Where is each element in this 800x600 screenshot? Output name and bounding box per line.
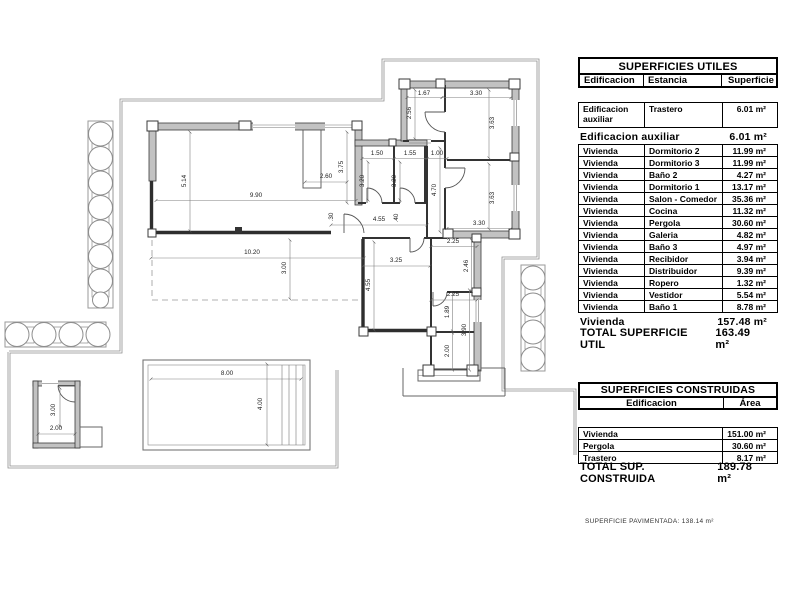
superficies-utiles-table: SUPERFICIES UTILES Edificacion Estancia … [578,57,778,348]
table-cell: Baño 1 [645,301,723,312]
dimension-label: 3.30 [473,220,486,227]
dimension-label: .30 [328,212,335,221]
table-cell: 13.17 m² [723,181,777,192]
dimension-label: 3.25 [390,257,403,264]
table-cell: 3.94 m² [723,253,777,264]
table-title: SUPERFICIES CONSTRUIDAS [578,382,778,398]
table-row: ViviendaCocina11.32 m² [578,204,778,217]
table-cell: 9.39 m² [723,265,777,276]
table-cell: Vivienda [579,253,645,264]
total-label: TOTAL SUPERFICIE UTIL [580,327,715,351]
table-header: Edificacion Estancia Superficie [578,73,778,88]
table-cell: Vivienda [579,217,645,228]
column-header: Estancia [644,75,722,86]
table-cell: 30.60 m² [723,440,777,451]
table-cell: Vestidor [645,289,723,300]
table-row: ViviendaDormitorio 113.17 m² [578,180,778,193]
dimension-label: 1.89 [444,305,451,318]
table-cell: 11.99 m² [723,145,777,156]
table-cell: 8.78 m² [723,301,777,312]
cell-estancia: Trastero [645,103,723,127]
column-header: Superficie [722,75,776,86]
table-row: ViviendaPergola30.60 m² [578,216,778,229]
floor-plan-document: 1.673.302.563.631.501.551.003.203.204.70… [0,0,800,600]
dimension-label: 1.00 [431,150,444,157]
table-cell: Pergola [645,217,723,228]
dimension-label: 5.14 [181,174,188,187]
dimension-label: 4.70 [431,183,438,196]
main-house-walls [147,79,520,396]
table-cell: Recibidor [645,253,723,264]
table-cell: Ropero [645,277,723,288]
table-cell: Vivienda [579,145,645,156]
dimension-label: 2.00 [50,425,63,432]
tree-row-left [88,121,113,308]
dimension-label: 3.75 [338,160,345,173]
construidas-rows: Vivienda151.00 m²Pergola30.60 m²Trastero… [578,427,778,464]
dimension-label: 2.25 [447,238,460,245]
dimension-label: 2.25 [447,291,460,298]
table-row: ViviendaBaño 34.97 m² [578,240,778,253]
table-row: ViviendaBaño 18.78 m² [578,300,778,313]
table-row: Vivienda151.00 m² [578,427,778,440]
table-row: ViviendaDormitorio 311.99 m² [578,156,778,169]
table-row: ViviendaBaño 24.27 m² [578,168,778,181]
table-cell: Baño 2 [645,169,723,180]
dimension-label: .40 [393,213,400,222]
dimension-label: 3.00 [281,261,288,274]
subtotal-row: Edificacion auxiliar 6.01 m² [578,128,778,145]
total-label: TOTAL SUP. CONSTRUIDA [580,461,717,485]
total-value: 163.49 m² [715,327,767,351]
tree-row-bottom [5,322,110,347]
table-cell: Vivienda [579,169,645,180]
dimension-label: 8.00 [221,370,234,377]
table-cell: 1.32 m² [723,277,777,288]
superficies-construidas-table: SUPERFICIES CONSTRUIDAS Edificacion Área… [578,382,778,482]
table-cell: Dormitorio 1 [645,181,723,192]
total-row: TOTAL SUPERFICIE UTIL 163.49 m² [578,330,778,348]
table-row: ViviendaSalon - Comedor35.36 m² [578,192,778,205]
table-cell: Vivienda [579,181,645,192]
storage-building [33,381,102,449]
dimension-label: 3.90 [461,323,468,336]
table-row: ViviendaVestidor5.54 m² [578,288,778,301]
table-cell: 4.27 m² [723,169,777,180]
dimension-label: 2.00 [444,344,451,357]
table-cell: Vivienda [579,428,723,439]
table-cell: 30.60 m² [723,217,777,228]
total-row: TOTAL SUP. CONSTRUIDA 189.78 m² [578,464,778,482]
table-cell: Cocina [645,205,723,216]
dimension-label: 3.00 [50,403,57,416]
table-cell: Dormitorio 2 [645,145,723,156]
column-header: Área [724,398,776,408]
dimension-label: 2.60 [320,173,333,180]
table-cell: Vivienda [579,289,645,300]
table-cell: Vivienda [579,241,645,252]
dimension-label: 4.55 [365,278,372,291]
total-value: 189.78 m² [717,461,767,485]
table-row: ViviendaGaleria4.82 m² [578,228,778,241]
table-cell: 151.00 m² [723,428,777,439]
table-cell: Distribuidor [645,265,723,276]
table-cell: Dormitorio 3 [645,157,723,168]
table-row: ViviendaDormitorio 211.99 m² [578,144,778,157]
subtotal-value: 6.01 m² [729,131,767,143]
subtotal-label: Edificacion auxiliar [580,131,680,143]
table-cell: Galeria [645,229,723,240]
table-row: Edificacion auxiliar Trastero 6.01 m² [578,102,778,128]
dimension-label: 1.50 [371,150,384,157]
cell-superficie: 6.01 m² [723,103,777,127]
table-cell: 5.54 m² [723,289,777,300]
table-cell: Vivienda [579,193,645,204]
table-cell: Vivienda [579,205,645,216]
table-row: ViviendaDistribuidor9.39 m² [578,264,778,277]
table-cell: Baño 3 [645,241,723,252]
dimension-label: 4.00 [257,397,264,410]
table-cell: Vivienda [579,301,645,312]
dimension-label: 4.55 [373,216,386,223]
tree-row-right [521,265,545,371]
dimension-label: 2.46 [463,259,470,272]
table-cell: 11.32 m² [723,205,777,216]
dimension-label: 10.20 [244,249,260,256]
dimension-label: 3.63 [489,116,496,129]
dimension-label: 3.63 [489,191,496,204]
table-cell: Vivienda [579,229,645,240]
table-row: ViviendaRopero1.32 m² [578,276,778,289]
subtotal-value: 157.48 m² [717,316,767,328]
dimension-label: 2.56 [406,106,413,119]
subtotal-label: Vivienda [580,316,625,328]
column-header: Edificacion [580,75,644,86]
table-row: ViviendaRecibidor3.94 m² [578,252,778,265]
table-cell: Vivienda [579,277,645,288]
table-cell: 4.82 m² [723,229,777,240]
paved-surface-note: SUPERFICIE PAVIMENTADA: 138.14 m² [585,518,714,525]
dimension-label: 1.55 [404,150,417,157]
dimension-label: 1.67 [418,90,431,97]
dimension-label: 3.20 [359,174,366,187]
table-header: Edificacion Área [578,396,778,410]
table-cell: 11.99 m² [723,157,777,168]
table-cell: 35.36 m² [723,193,777,204]
table-cell: Vivienda [579,265,645,276]
table-cell: 4.97 m² [723,241,777,252]
cell-edificacion: Edificacion auxiliar [579,103,645,127]
table-row: Pergola30.60 m² [578,439,778,452]
table-cell: Vivienda [579,157,645,168]
dimension-label: 3.20 [391,174,398,187]
column-header: Edificacion [580,398,724,408]
dimension-label: 3.30 [470,90,483,97]
table-cell: Pergola [579,440,723,451]
dimension-label: 9.90 [250,192,263,199]
vivienda-rows: ViviendaDormitorio 211.99 m²ViviendaDorm… [578,144,778,313]
table-cell: Salon - Comedor [645,193,723,204]
